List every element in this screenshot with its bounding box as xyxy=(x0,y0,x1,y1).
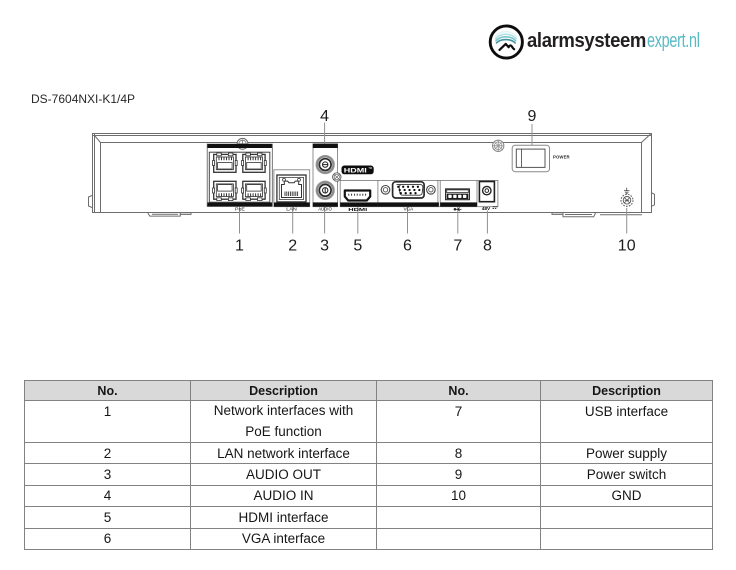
svg-text:6: 6 xyxy=(403,238,412,255)
svg-text:8: 8 xyxy=(483,238,492,255)
svg-text:LAN: LAN xyxy=(286,207,297,212)
svg-text:3: 3 xyxy=(320,238,329,255)
svg-text:7: 7 xyxy=(453,238,462,255)
svg-text:AUDIO: AUDIO xyxy=(318,207,332,212)
svg-text:POWER: POWER xyxy=(553,154,571,159)
svg-text:HDMI: HDMI xyxy=(348,207,367,212)
svg-text:2: 2 xyxy=(288,238,297,255)
svg-text:PoE: PoE xyxy=(235,207,246,213)
svg-text:48V: 48V xyxy=(482,206,491,212)
svg-text:TM: TM xyxy=(368,166,372,170)
svg-text:10: 10 xyxy=(618,238,636,255)
svg-text:5: 5 xyxy=(353,238,362,255)
svg-text:4: 4 xyxy=(320,108,329,125)
svg-text:HDMI: HDMI xyxy=(344,167,367,174)
svg-text:VGA: VGA xyxy=(403,207,414,212)
svg-text:9: 9 xyxy=(528,108,537,125)
svg-text:1: 1 xyxy=(235,238,244,255)
